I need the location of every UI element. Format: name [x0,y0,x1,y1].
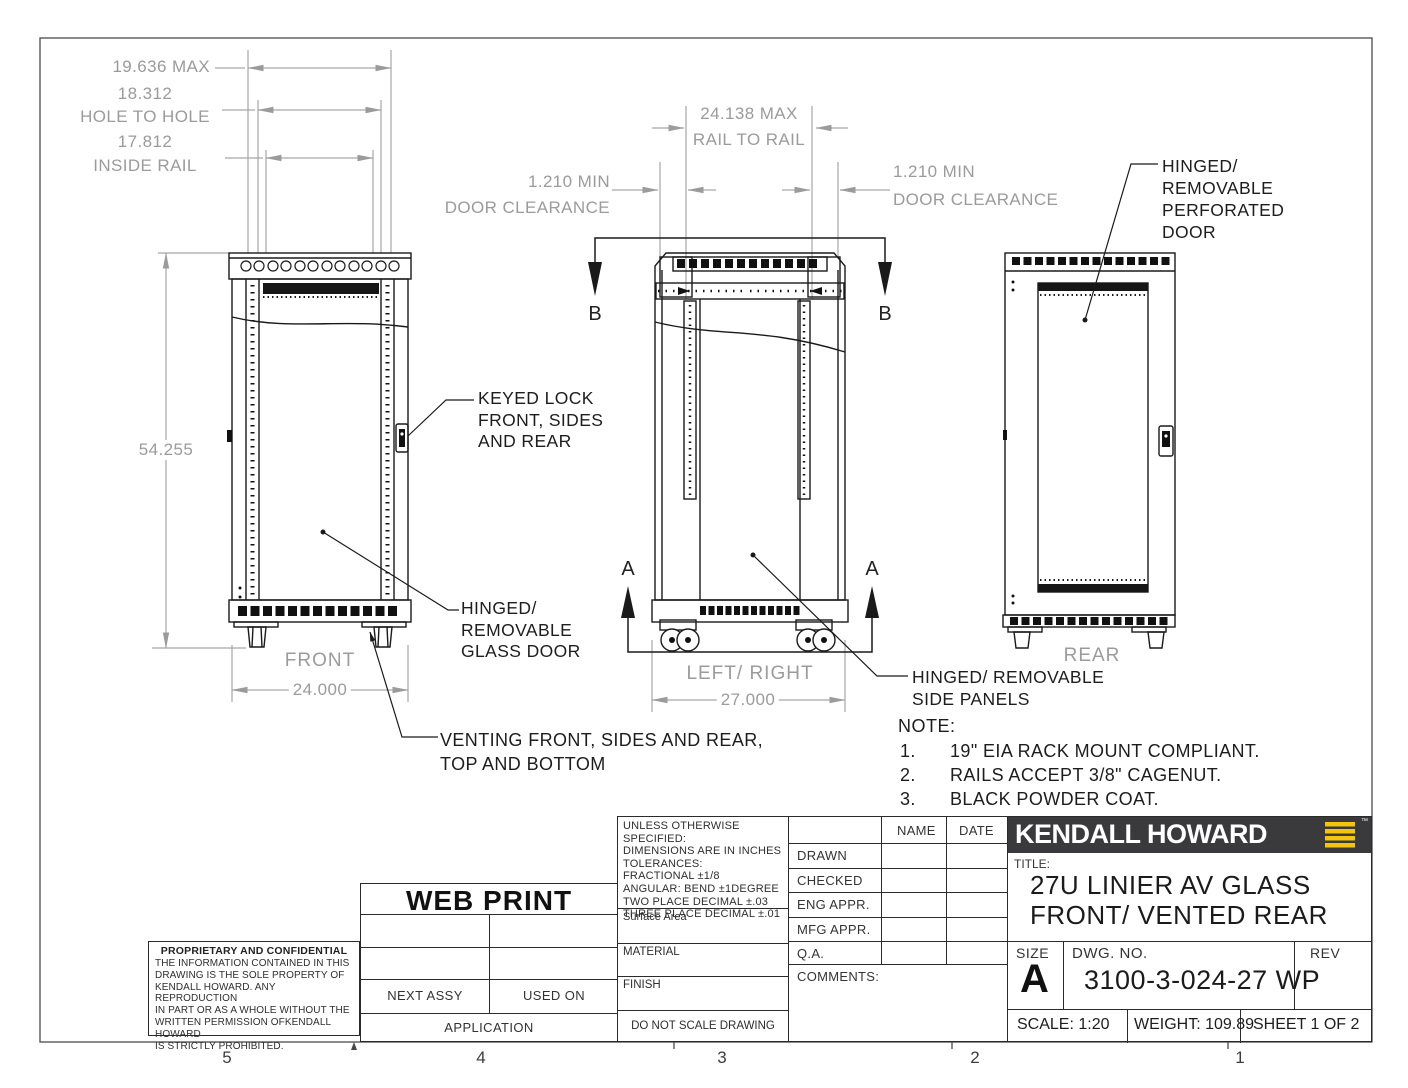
zone-label-4: 4 [476,1048,485,1068]
callout-glass-door: HINGED/ REMOVABLE GLASS DOOR [461,598,581,663]
approval-date-header: DATE [959,823,994,838]
section-b-arrow-right [878,262,892,296]
approval-comments-label: COMMENTS: [797,969,879,984]
scale-row-line [1008,1009,1371,1010]
approval-row-line-5 [789,941,1007,942]
dim-depth: 27.000 [717,690,779,710]
zone-label-1: 1 [1235,1048,1244,1068]
dim-rail-to-rail-label: RAIL TO RAIL [693,130,805,150]
note-text-3: BLACK POWDER COAT. [950,789,1159,809]
brand-logo-bars-icon [1325,822,1355,848]
approval-table: NAME DATE DRAWN CHECKED ENG APPR. MFG AP… [788,816,1008,1042]
dim-inside-rail-value: 17.812 [118,132,172,152]
do-not-scale-label: DO NOT SCALE DRAWING [618,1011,788,1032]
rear-view-label: REAR [1064,645,1121,667]
dwg-no-value: 3100-3-024-27 WP [1084,965,1320,996]
note-text-2: RAILS ACCEPT 3/8" CAGENUT. [950,765,1222,785]
note-text-1: 19" EIA RACK MOUNT COMPLIANT. [950,741,1260,761]
section-b-marker [595,238,885,262]
front-view [227,253,411,647]
tolerance-block: UNLESS OTHERWISE SPECIFIED: DIMENSIONS A… [617,816,789,1042]
finish-label: FINISH [618,977,788,991]
drawing-sheet: 19.636 MAX 18.312 HOLE TO HOLE 17.812 IN… [0,0,1408,1088]
note-num-2: 2. [900,765,950,786]
approval-row-line-4 [789,917,1007,918]
zone-label-2: 2 [970,1048,979,1068]
dim-door-clearance-left-label: DOOR CLEARANCE [408,198,610,218]
approval-row-line-2 [789,868,1007,869]
zone-label-3: 3 [717,1048,726,1068]
proprietary-title: PROPRIETARY AND CONFIDENTIAL [149,942,359,957]
dwg-no-label: DWG. NO. [1072,945,1148,962]
section-b-label-left: B [588,303,601,326]
used-on-label: USED ON [489,988,619,1003]
approval-row-qa: Q.A. [797,946,824,961]
do-not-scale-section: DO NOT SCALE DRAWING [618,1010,788,1042]
note-item-2: 2.RAILS ACCEPT 3/8" CAGENUT. [900,765,1222,786]
approval-name-header: NAME [897,823,936,838]
section-a-label-right: A [865,558,878,581]
note-num-1: 1. [900,741,950,762]
assy-row-line-1 [361,947,617,948]
approval-row-line-1 [789,843,1007,844]
note-num-3: 3. [900,789,950,810]
weight-text: WEIGHT: 109.89 [1134,1016,1254,1034]
dim-inside-rail-label: INSIDE RAIL [93,156,197,176]
dim-front-width: 24.000 [289,680,351,700]
application-label: APPLICATION [361,1020,617,1035]
rev-label: REV [1310,945,1340,961]
note-item-1: 1.19" EIA RACK MOUNT COMPLIANT. [900,741,1260,762]
assy-row-line-2 [361,979,617,980]
approval-row-drawn: DRAWN [797,848,847,863]
section-b-arrow-left [588,262,602,296]
callout-perforated-door: HINGED/ REMOVABLE PERFORATED DOOR [1162,155,1284,243]
approval-row-line-3 [789,892,1007,893]
callout-keyed-lock: KEYED LOCK FRONT, SIDES AND REAR [478,388,603,453]
callout-leaders [323,164,1158,737]
brand-logo-bar: KENDALL HOWARD ™ [1008,817,1371,853]
scale-text: SCALE: 1:20 [1017,1016,1110,1034]
approval-row-checked: CHECKED [797,873,863,888]
dim-width-max: 19.636 MAX [60,57,210,77]
side-view [652,253,848,651]
callout-side-panels: HINGED/ REMOVABLE SIDE PANELS [912,666,1104,710]
application-block: WEB PRINT NEXT ASSY USED ON APPLICATION [360,883,618,1042]
dim-door-clearance-left-value: 1.210 MIN [450,172,610,192]
title-block-right: KENDALL HOWARD ™ TITLE: 27U LINIER AV GL… [1007,816,1372,1042]
web-print-text: WEB PRINT [361,884,617,917]
proprietary-box: PROPRIETARY AND CONFIDENTIAL THE INFORMA… [148,941,360,1036]
material-label: MATERIAL [618,944,788,958]
front-view-label: FRONT [285,650,355,672]
next-assy-label: NEXT ASSY [361,988,489,1003]
title-line-1: 27U LINIER AV GLASS [1030,870,1311,901]
sheet-text: SHEET 1 OF 2 [1253,1016,1359,1034]
note-title: NOTE: [898,716,956,737]
size-value: A [1020,957,1049,1002]
section-a-label-left: A [621,558,634,581]
approval-row-eng-appr: ENG APPR. [797,897,870,912]
leader-dot-side-panels [751,553,756,558]
rear-view [1003,253,1175,648]
leader-dot-perforated-door [1083,318,1088,323]
leader-dot-glass-door [321,530,326,535]
dim-height: 54.255 [135,440,197,460]
note-item-3: 3.BLACK POWDER COAT. [900,789,1159,810]
material-section: MATERIAL [618,943,788,976]
dim-rail-to-rail-value: 24.138 MAX [700,104,798,124]
dim-hole-to-hole-label: HOLE TO HOLE [80,107,210,127]
tolerances-text: UNLESS OTHERWISE SPECIFIED: DIMENSIONS A… [618,817,788,908]
web-print-box: WEB PRINT [361,884,617,915]
side-view-label: LEFT/ RIGHT [686,663,813,685]
title-line-2: FRONT/ VENTED REAR [1030,900,1328,931]
approval-row-line-6 [789,964,1007,965]
scale-weight-divider [1127,1009,1128,1043]
zone-label-5: 5 [222,1048,231,1068]
title-label: TITLE: [1014,857,1050,871]
size-dwg-divider [1063,941,1064,1009]
section-a-arrow-left [621,586,635,618]
approval-row-mfg-appr: MFG APPR. [797,922,871,937]
callout-venting: VENTING FRONT, SIDES AND REAR, TOP AND B… [440,728,763,776]
section-b-label-right: B [878,303,891,326]
section-a-arrow-right [865,586,879,618]
finish-section: FINISH [618,976,788,1010]
application-row-line [361,1013,617,1014]
dim-door-clearance-right-value: 1.210 MIN [893,162,975,182]
dim-hole-to-hole-value: 18.312 [118,84,172,104]
brand-trademark: ™ [1361,818,1368,825]
dim-door-clearance-right-label: DOOR CLEARANCE [893,190,1058,210]
proprietary-text: THE INFORMATION CONTAINED IN THIS DRAWIN… [149,957,359,1052]
brand-logo-text: KENDALL HOWARD [1015,819,1267,850]
